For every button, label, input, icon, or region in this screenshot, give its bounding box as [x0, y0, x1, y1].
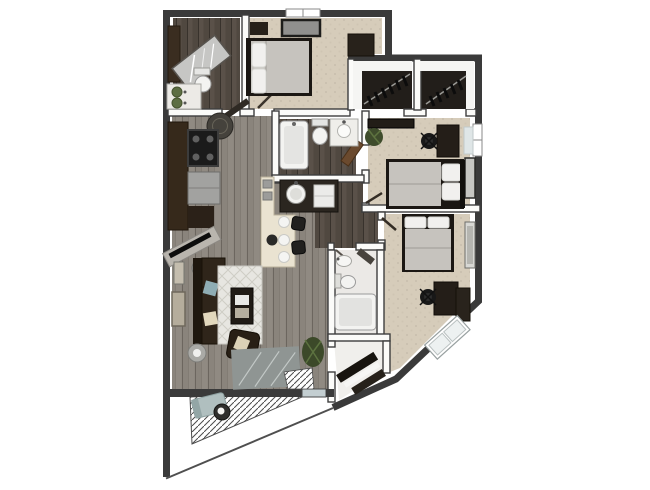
burner [193, 154, 200, 161]
nightstand [250, 22, 268, 35]
books [235, 308, 249, 318]
wall [272, 111, 279, 183]
living-balcony-wall [168, 389, 302, 397]
bathtub [335, 294, 376, 330]
vanity [330, 119, 358, 146]
wall-art [172, 262, 185, 326]
small-appliance [263, 192, 272, 200]
vanity [167, 84, 201, 109]
sink-bowl [172, 98, 182, 108]
window [464, 124, 482, 156]
island-sink [267, 235, 278, 246]
burner [207, 136, 214, 143]
wall [328, 250, 335, 341]
bed [246, 38, 312, 96]
cabinet-run [168, 122, 188, 230]
wall [466, 109, 476, 116]
wall [328, 341, 335, 347]
pillow [252, 69, 266, 93]
pillow [405, 217, 426, 228]
floor-lamp [188, 344, 206, 362]
sink-bowl [172, 87, 182, 97]
pillow [252, 43, 266, 67]
wall [377, 250, 384, 336]
pillow [442, 183, 461, 200]
small-appliance [263, 180, 272, 188]
headboard [460, 160, 465, 208]
throw-pillow [203, 311, 218, 326]
lower-cabinet [188, 206, 214, 228]
wall [240, 109, 254, 116]
wall-art [465, 158, 475, 198]
plant [302, 337, 324, 367]
tv-console [368, 119, 414, 128]
books [235, 295, 249, 305]
pillow [442, 164, 461, 181]
place-setting [279, 217, 290, 228]
closet-shelf [353, 61, 362, 109]
range [188, 130, 218, 166]
wall [328, 334, 390, 341]
wall-art [282, 20, 320, 36]
burner [193, 136, 200, 143]
toilet [312, 119, 328, 145]
closet-shelf [420, 61, 474, 71]
coffee-table [231, 288, 253, 324]
counter-with-sink [280, 180, 338, 212]
sink [337, 256, 352, 267]
wall [274, 109, 350, 116]
bathtub [280, 121, 308, 169]
wall [328, 372, 335, 402]
faucet [294, 181, 298, 185]
wall-art [465, 222, 475, 268]
desk [434, 282, 458, 315]
balcony-sliding-door [302, 389, 326, 397]
deck-strip [284, 368, 314, 389]
patio-table [214, 404, 230, 420]
stool [291, 240, 305, 254]
stool [291, 216, 306, 231]
pillow [428, 217, 449, 228]
dresser [348, 34, 374, 56]
sink [338, 125, 351, 138]
place-setting [279, 252, 290, 263]
floor-plan-image [0, 0, 650, 490]
bed [386, 159, 465, 209]
closet-shelf [466, 61, 474, 109]
toilet [335, 274, 356, 289]
desk [437, 125, 459, 157]
office-chair [421, 133, 437, 149]
wall [383, 341, 390, 373]
floor-plan-svg [0, 0, 650, 490]
wall [328, 243, 334, 250]
office-chair [420, 289, 436, 305]
duvet [405, 229, 451, 270]
burner [207, 154, 214, 161]
wall [326, 389, 334, 397]
plant [365, 128, 383, 146]
wall [414, 59, 421, 110]
place-setting [279, 235, 290, 246]
bed [402, 214, 454, 272]
refrigerator [188, 172, 220, 204]
hallway-floor [337, 180, 363, 212]
